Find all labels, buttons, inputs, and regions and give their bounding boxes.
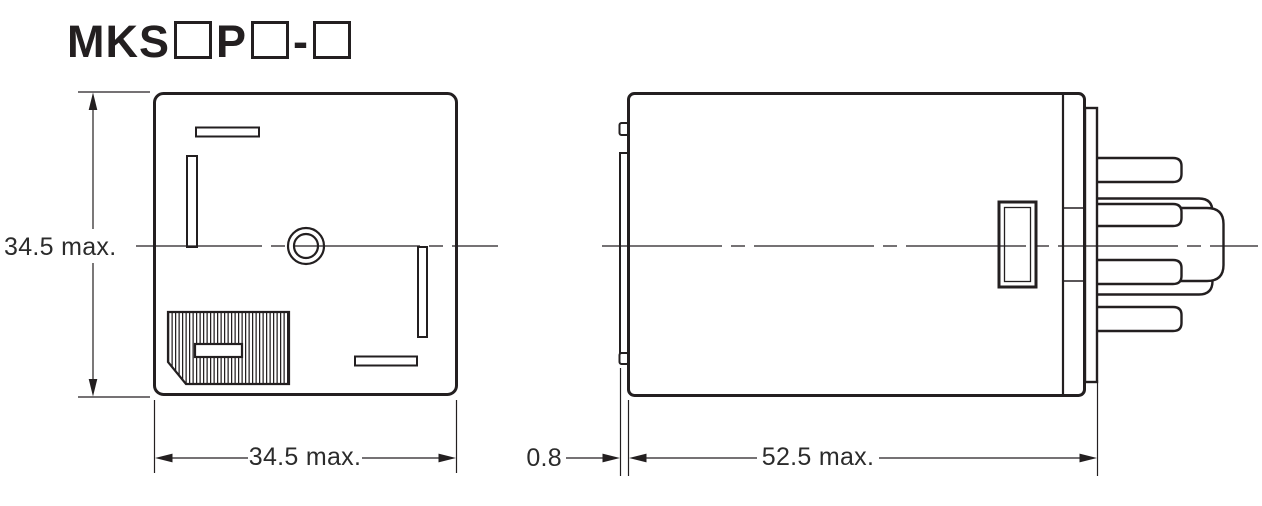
line-art <box>0 0 1262 506</box>
front-bottom-slot <box>355 357 417 366</box>
model-code-box-1 <box>174 21 212 59</box>
length-arrow-left <box>629 454 647 463</box>
model-code-box-3 <box>313 21 351 59</box>
model-code-mid: P <box>216 16 247 67</box>
model-code: MKSP- <box>67 16 355 68</box>
pin-4 <box>1097 307 1182 331</box>
length-arrow-right <box>1080 454 1098 463</box>
vent-label-slot <box>195 344 242 357</box>
pin-3 <box>1097 260 1182 284</box>
plate-dim-arrow <box>603 454 621 463</box>
socket-plate <box>1085 108 1097 382</box>
arrow-left <box>155 454 173 463</box>
dimensional-drawing: MKSP- 34.5 max. 34.5 max. 0.8 52.5 max. <box>0 0 1262 506</box>
arrow-right <box>439 454 457 463</box>
arrow-up <box>89 93 98 111</box>
arrow-down <box>89 379 98 397</box>
front-view <box>136 94 498 395</box>
front-width-label: 34.5 max. <box>243 443 367 472</box>
plate-thickness-label: 0.8 <box>522 444 562 473</box>
model-code-prefix: MKS <box>67 16 170 67</box>
body-length-label: 52.5 max. <box>757 443 879 472</box>
front-top-slot <box>196 128 259 137</box>
model-code-box-2 <box>251 21 289 59</box>
front-right-slot <box>418 247 427 337</box>
pin-2 <box>1097 204 1182 226</box>
pin-1 <box>1097 158 1182 182</box>
front-left-slot <box>187 156 197 247</box>
model-code-dash: - <box>293 16 309 67</box>
front-height-label: 34.5 max. <box>4 233 116 262</box>
side-view <box>602 94 1258 396</box>
